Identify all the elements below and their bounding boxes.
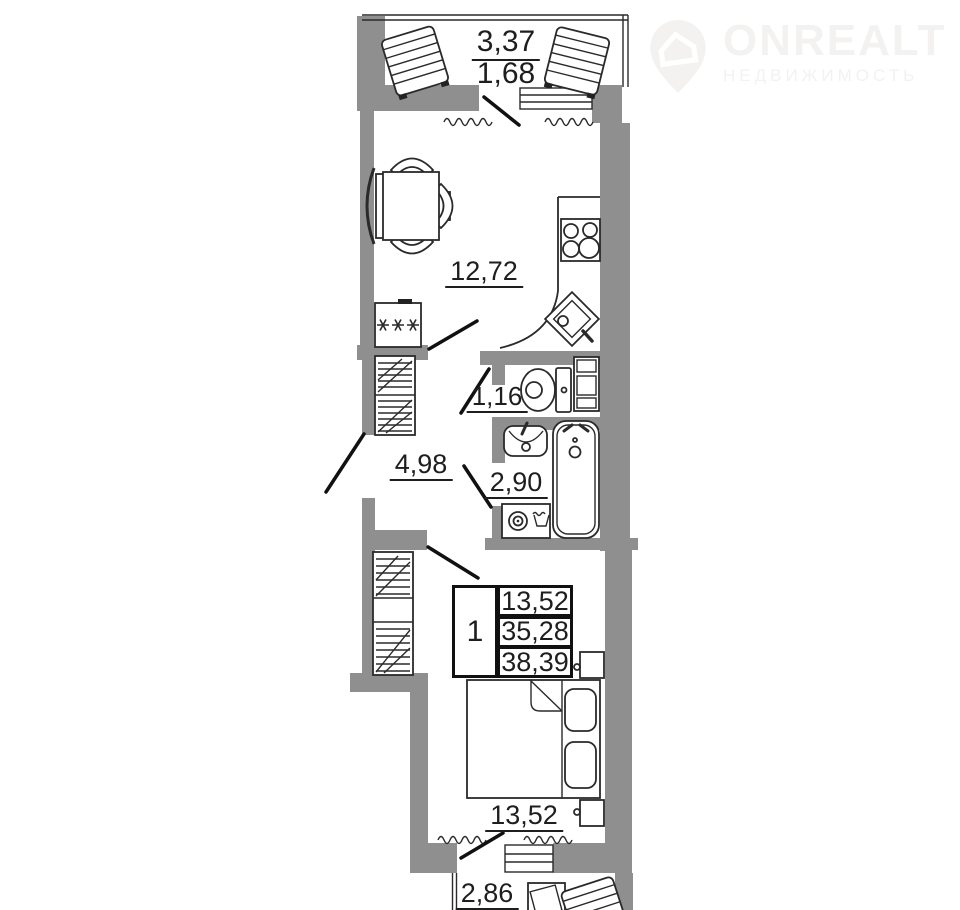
- coffee-table-icon: [528, 883, 565, 910]
- floor-plan: ONREALT НЕДВИЖИМОСТЬ: [0, 0, 960, 910]
- bedroom-door-swing: [428, 547, 478, 578]
- toilet-icon: [521, 368, 571, 412]
- wc-shelf-icon: [574, 357, 599, 411]
- dining-table-icon: [383, 172, 439, 240]
- stove-icon: [561, 219, 600, 261]
- washbasin-icon: [504, 423, 547, 456]
- bathtub-icon: [553, 421, 599, 538]
- usable-area: 35,28: [497, 616, 573, 648]
- apartment-info-table: 1 13,52 35,28 38,39: [452, 585, 573, 678]
- total-area: 38,39: [497, 646, 573, 678]
- hallway-area-label: 4,98: [390, 450, 453, 481]
- kitchen-door-swing: [429, 321, 477, 349]
- pillow-icon: [565, 689, 596, 731]
- balcony-top-reduced-area-label: 1,68: [477, 58, 535, 90]
- balcony-top-door-swing: [484, 97, 519, 125]
- balcony-bottom-door-swing: [461, 833, 503, 858]
- balcony-bottom-area-label: 2,86: [456, 879, 519, 910]
- living-area: 13,52: [497, 585, 573, 617]
- bedroom-area-label: 13,52: [485, 801, 563, 832]
- entrance-door-swing: [326, 434, 364, 492]
- rooms-count: 1: [452, 585, 498, 678]
- wardrobe-icon: [373, 552, 413, 675]
- pillow-icon: [565, 742, 596, 788]
- bathroom-area-label: 2,90: [485, 468, 548, 499]
- kitchen-area-label: 12,72: [445, 257, 523, 288]
- wc-area-label: 1,16: [467, 383, 528, 413]
- washing-machine-icon: [502, 504, 550, 538]
- bedroom-window: [505, 845, 553, 872]
- bed-icon: [467, 680, 600, 798]
- kitchen-sink-icon: [545, 292, 599, 346]
- fridge-icon: [375, 299, 421, 347]
- dining-set-icon: [367, 159, 453, 254]
- balcony-top-area-label: 3,37: [472, 26, 540, 61]
- wardrobe-icon: [375, 356, 415, 435]
